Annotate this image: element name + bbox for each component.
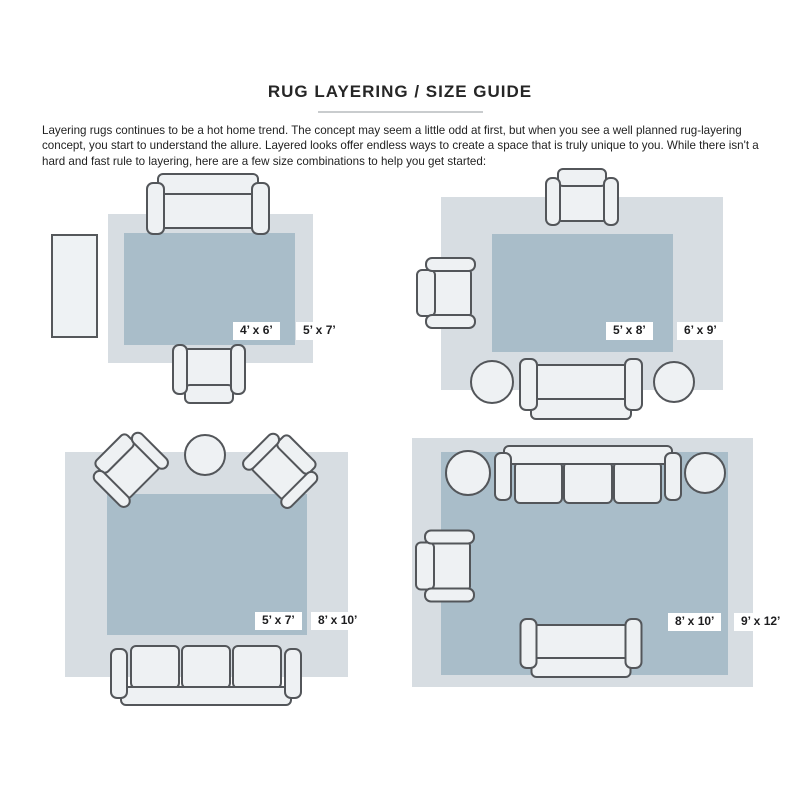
layered-rug-size-label: 8’ x 10’ <box>668 613 721 631</box>
round-side-table-icon <box>445 450 491 496</box>
rug-size-guide-page: RUG LAYERING / SIZE GUIDE Layering rugs … <box>0 0 800 800</box>
base-rug-size-label: 8’ x 10’ <box>311 612 364 630</box>
title-divider <box>318 111 483 113</box>
base-rug-size-label: 5’ x 7’ <box>296 322 343 340</box>
layered-rug-size-label: 4’ x 6’ <box>233 322 280 340</box>
armchair-icon <box>416 257 476 329</box>
base-rug-size-label: 6’ x 9’ <box>677 322 724 340</box>
round-side-table-icon <box>684 452 726 494</box>
intro-paragraph: Layering rugs continues to be a hot home… <box>42 123 762 169</box>
page-title: RUG LAYERING / SIZE GUIDE <box>0 0 800 102</box>
header: RUG LAYERING / SIZE GUIDE Layering rugs … <box>0 0 800 169</box>
loveseat-sofa-icon <box>146 173 270 235</box>
armchair-icon <box>172 344 246 404</box>
base-rug-size-label: 9’ x 12’ <box>734 613 787 631</box>
round-side-table-icon <box>653 361 695 403</box>
console-table-icon <box>51 234 98 338</box>
loveseat-sofa-icon <box>520 618 643 678</box>
round-side-table-icon <box>470 360 514 404</box>
armchair-icon <box>415 530 475 603</box>
round-side-table-icon <box>184 434 226 476</box>
armchair-icon <box>545 168 619 226</box>
loveseat-sofa-icon <box>519 358 643 420</box>
sofa-icon <box>110 644 302 706</box>
sofa-icon <box>494 445 682 505</box>
layered-rug-size-label: 5’ x 8’ <box>606 322 653 340</box>
layered-rug-size-label: 5’ x 7’ <box>255 612 302 630</box>
